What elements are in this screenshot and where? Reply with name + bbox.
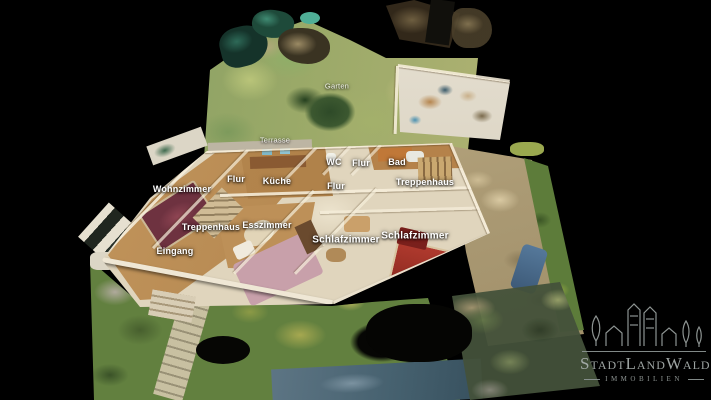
room-label-esszimmer: Esszimmer <box>242 220 291 230</box>
scan-void <box>196 336 250 364</box>
scan-fragment <box>452 8 492 48</box>
room-label-kueche: Küche <box>263 176 292 186</box>
scan-void <box>366 304 472 362</box>
hedge-top <box>510 142 544 156</box>
room-label-flur-mid: Flur <box>327 181 345 191</box>
logo-divider <box>582 351 706 352</box>
stadtlandwald-logo: StadtLandWald IMMOBILIEN <box>580 301 708 383</box>
tagline-left-line <box>584 379 600 380</box>
table <box>326 248 346 262</box>
room-label-treppenhaus-r: Treppenhaus <box>396 177 454 187</box>
screenshot-root: Garten Terrasse WC Flur Bad Flur Küche F… <box>0 0 711 400</box>
room-label-wc: WC <box>326 157 341 167</box>
room-label-eingang: Eingang <box>157 246 194 256</box>
room-label-terrasse: Terrasse <box>260 136 290 145</box>
room-label-wohnzimmer: Wohnzimmer <box>153 184 211 194</box>
room-label-treppenhaus-l: Treppenhaus <box>182 222 240 232</box>
room-label-bad: Bad <box>388 157 406 167</box>
logo-tagline-text: IMMOBILIEN <box>605 375 683 383</box>
room-label-schlafzimmer-m: Schlafzimmer <box>312 235 379 246</box>
house-wall <box>320 206 488 214</box>
room-label-flur-left: Flur <box>227 174 245 184</box>
logo-tagline-row: IMMOBILIEN <box>580 375 708 383</box>
logo-buildings-trees-icon <box>580 301 708 349</box>
logo-brand-text: StadtLandWald <box>580 355 708 373</box>
scan-fragment <box>300 12 320 24</box>
room-label-flur-top: Flur <box>352 158 370 168</box>
tagline-right-line <box>688 379 704 380</box>
room-label-schlafzimmer-r: Schlafzimmer <box>381 231 448 242</box>
room-label-garten: Garten <box>325 82 349 91</box>
